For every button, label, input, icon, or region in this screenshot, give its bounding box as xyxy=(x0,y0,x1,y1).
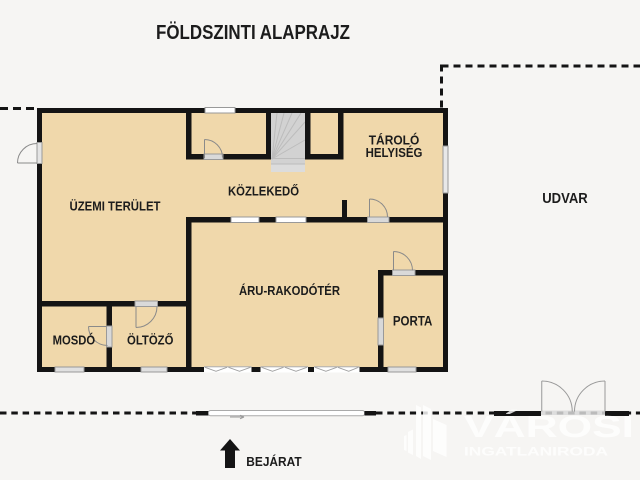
svg-text:VÁROSI: VÁROSI xyxy=(464,409,634,444)
svg-text:KÖZLEKEDŐ: KÖZLEKEDŐ xyxy=(228,184,299,199)
svg-text:UDVAR: UDVAR xyxy=(542,190,588,207)
svg-text:ÁRU-RAKODÓTÉR: ÁRU-RAKODÓTÉR xyxy=(239,283,341,298)
svg-text:MOSDÓ: MOSDÓ xyxy=(53,332,96,347)
svg-text:FÖLDSZINTI ALAPRAJZ: FÖLDSZINTI ALAPRAJZ xyxy=(156,21,350,44)
svg-text:ÜZEMI TERÜLET: ÜZEMI TERÜLET xyxy=(70,199,161,214)
svg-text:PORTA: PORTA xyxy=(393,314,433,329)
svg-text:HELYISÉG: HELYISÉG xyxy=(366,145,423,160)
svg-text:ÖLTÖZŐ: ÖLTÖZŐ xyxy=(127,332,174,347)
svg-text:INGATLANIRODA: INGATLANIRODA xyxy=(464,446,608,458)
svg-text:BEJÁRAT: BEJÁRAT xyxy=(246,454,301,469)
